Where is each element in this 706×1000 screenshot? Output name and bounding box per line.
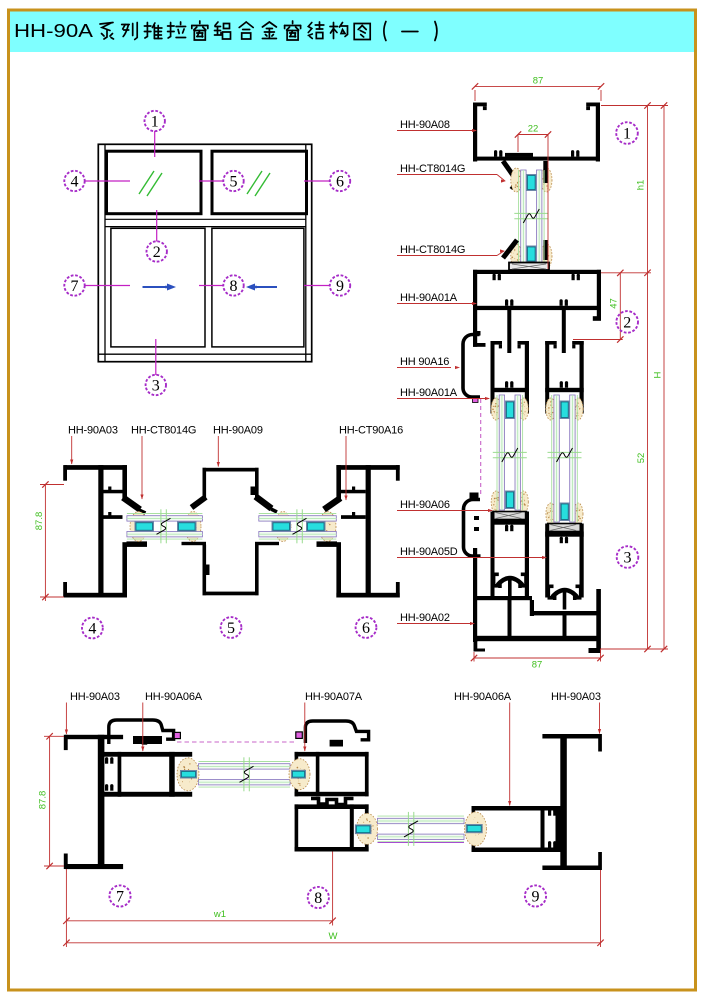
svg-text:HH-CT8014G: HH-CT8014G [400, 244, 465, 256]
svg-text:HH-CT8014G: HH-CT8014G [131, 425, 196, 437]
svg-text:W: W [329, 931, 338, 942]
svg-text:4: 4 [71, 174, 79, 191]
svg-text:HH-CT90A16: HH-CT90A16 [339, 425, 403, 437]
svg-text:1: 1 [623, 126, 631, 143]
svg-text:h1: h1 [636, 180, 647, 191]
svg-text:87.8: 87.8 [34, 512, 45, 531]
svg-text:4: 4 [88, 621, 96, 638]
svg-text:HH-90A02: HH-90A02 [400, 612, 450, 624]
svg-text:3: 3 [152, 378, 160, 395]
svg-text:6: 6 [362, 620, 370, 637]
svg-text:87: 87 [533, 76, 544, 87]
svg-text:52: 52 [636, 453, 647, 464]
svg-text:HH-90A06A: HH-90A06A [145, 691, 203, 703]
svg-text:2: 2 [153, 244, 161, 261]
svg-text:9: 9 [532, 889, 540, 906]
svg-text:8: 8 [230, 278, 238, 295]
svg-text:7: 7 [116, 889, 124, 906]
svg-text:7: 7 [71, 278, 79, 295]
svg-text:HH-90A08: HH-90A08 [400, 119, 450, 131]
svg-text:HH-90A03: HH-90A03 [68, 425, 118, 437]
svg-text:2: 2 [623, 315, 631, 332]
svg-text:3: 3 [624, 550, 632, 567]
svg-text:HH-CT8014G: HH-CT8014G [400, 163, 465, 175]
svg-text:47: 47 [609, 298, 620, 309]
svg-text:HH-90A06A: HH-90A06A [454, 691, 512, 703]
svg-text:H: H [653, 371, 664, 378]
svg-text:5: 5 [227, 620, 235, 637]
svg-text:5: 5 [230, 174, 238, 191]
svg-text:HH-90A09: HH-90A09 [213, 425, 263, 437]
svg-text:8: 8 [314, 890, 322, 907]
svg-text:87: 87 [532, 660, 543, 671]
svg-text:9: 9 [336, 278, 344, 295]
svg-text:6: 6 [336, 174, 344, 191]
svg-text:HH-90A01A: HH-90A01A [400, 387, 458, 399]
svg-text:HH-90A05D: HH-90A05D [400, 546, 458, 558]
svg-text:HH-90A07A: HH-90A07A [305, 691, 363, 703]
svg-text:HH-90A: HH-90A [14, 20, 94, 41]
svg-text:HH-90A01A: HH-90A01A [400, 292, 458, 304]
svg-text:HH-90A03: HH-90A03 [70, 691, 120, 703]
svg-text:22: 22 [528, 124, 539, 135]
svg-text:HH-90A06: HH-90A06 [400, 499, 450, 511]
svg-text:HH-90A03: HH-90A03 [551, 691, 601, 703]
svg-text:w1: w1 [213, 909, 226, 920]
svg-text:HH 90A16: HH 90A16 [400, 356, 449, 368]
svg-text:87.8: 87.8 [38, 791, 49, 810]
svg-text:1: 1 [151, 114, 159, 131]
